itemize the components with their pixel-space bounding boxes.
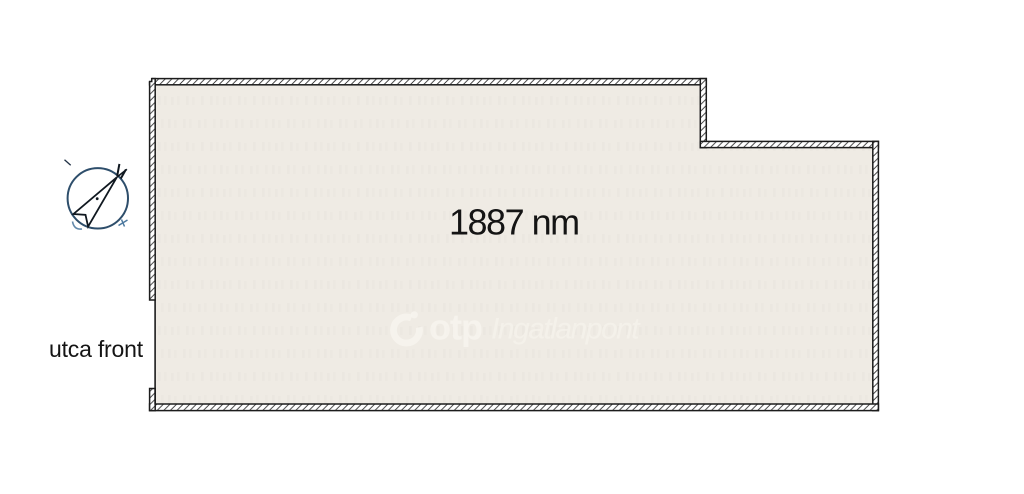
svg-text:Ingatlanpont: Ingatlanpont <box>491 313 641 346</box>
svg-text:1887 nm: 1887 nm <box>449 202 579 243</box>
svg-text:utca front: utca front <box>49 336 144 362</box>
svg-text:otp: otp <box>429 307 482 348</box>
